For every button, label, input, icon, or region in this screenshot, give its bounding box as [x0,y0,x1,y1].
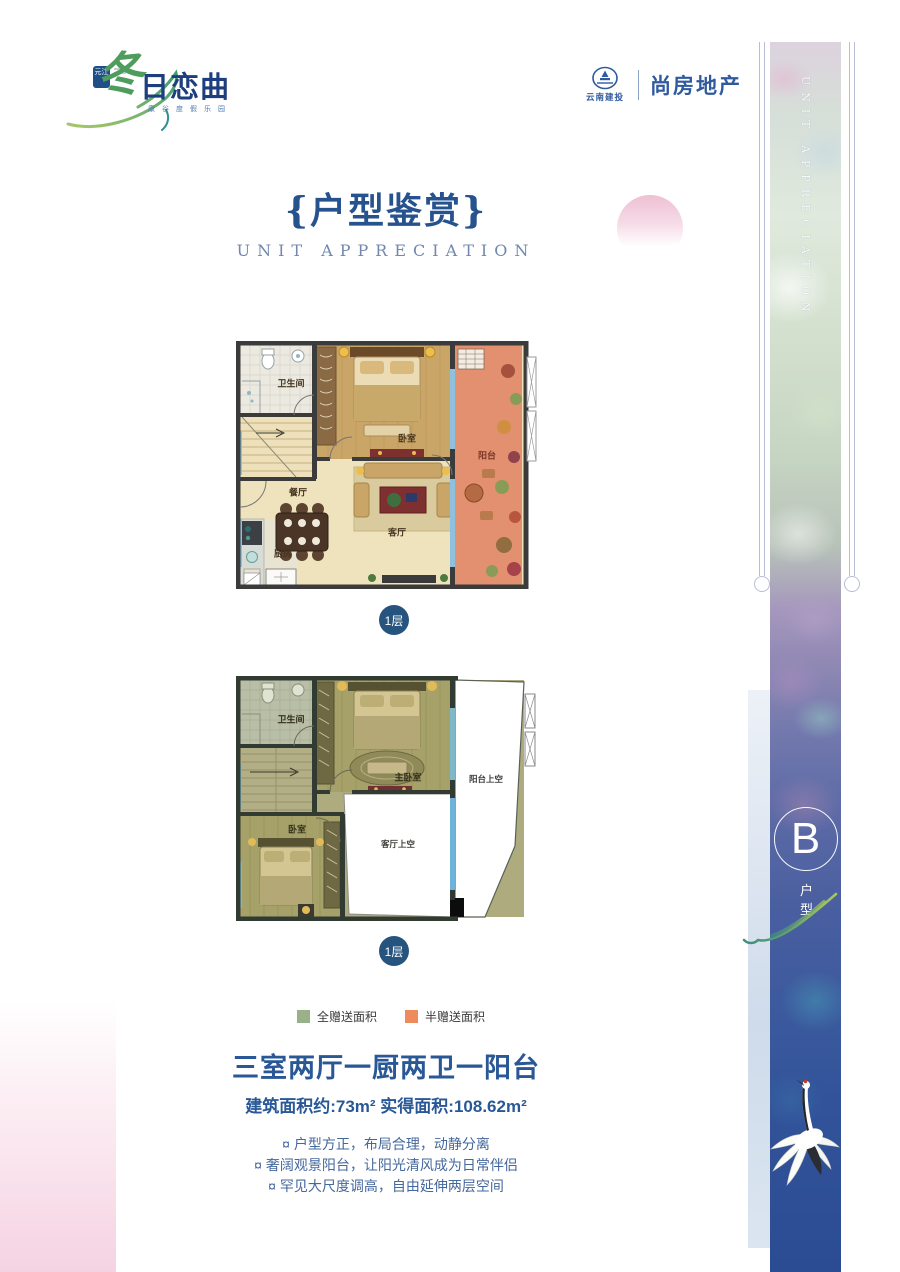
logo-divider [638,70,639,100]
developer-logo: 云南建投 [583,66,627,103]
rail-dot-left [754,576,770,592]
plan2-living-void [344,794,452,917]
floor-badge-2: 1层 [379,936,409,966]
floor-badge-1: 1层 [379,605,409,635]
room-label-bedroom: 卧室 [398,432,416,445]
unit-circle: B [774,807,838,871]
plan2-black-block [450,898,464,917]
legend-item-half-gift: 半赠送面积 [405,1008,485,1025]
legend-swatch-orange [405,1010,418,1023]
agency-name: 尚房地产 [650,70,742,100]
plan2-ac-ledge [525,694,535,766]
room-label-bathroom-2: 卫生间 [277,713,304,726]
band-vertical-text: UNIT APPRECIATION [799,76,812,319]
developer-logo-group: 云南建投 尚房地产 [583,66,742,103]
feature-line-3: ¤ 罕见大尺度调高，自由延伸两层空间 [186,1176,586,1197]
floor-plan-2: 卫生间 主卧室 阳台上空 卧室 客厅上空 [236,676,538,921]
pink-corner-decoration [0,1002,116,1272]
legend-item-full-gift: 全赠送面积 [297,1008,377,1025]
feature-line-2: ¤ 奢阔观景阳台，让阳光清风成为日常伴侣 [186,1155,586,1176]
brand-logo-accent-char: 冬 [93,34,147,108]
vine-decoration-icon [738,878,848,948]
unit-letter: B [791,814,820,864]
room-label-balcony-void: 阳台上空 [469,773,503,785]
brand-logo-text: 日恋曲 [140,64,230,106]
legend-label-full-gift: 全赠送面积 [317,1008,377,1025]
brand-tagline: 康谷度假乐园 [148,104,232,114]
feature-line-1: ¤ 户型方正，布局合理，动静分离 [186,1134,586,1155]
page-title: {户型鉴赏} [216,182,556,234]
crane-icon [767,1077,845,1197]
area-info: 建筑面积约:73m² 实得面积:108.62m² [211,1092,561,1117]
room-label-master-bedroom: 主卧室 [394,771,421,784]
rail-dot-right [844,576,860,592]
developer-emblem-icon [592,66,618,90]
feature-list: ¤ 户型方正，布局合理，动静分离 ¤ 奢阔观景阳台，让阳光清风成为日常伴侣 ¤ … [186,1134,586,1197]
legend: 全赠送面积 半赠送面积 [236,1008,546,1025]
rail-right [849,42,855,576]
legend-label-half-gift: 半赠送面积 [425,1008,485,1025]
room-label-kitchen: 厨房 [274,547,292,560]
legend-swatch-green [297,1010,310,1023]
room-label-living-void: 客厅上空 [381,838,415,850]
sun-decoration [617,195,683,261]
room-label-bedroom-2: 卧室 [288,823,306,836]
poster-page: 元江 冬 日恋曲 康谷度假乐园 云南建投 尚房地产 {户型鉴赏} UNIT AP… [0,0,900,1272]
room-label-bathroom: 卫生间 [277,377,304,390]
brand-logo: 元江 冬 日恋曲 康谷度假乐园 [70,46,280,132]
plan1-balcony-floor [452,345,522,585]
floor-plan-1: 卫生间 卧室 阳台 餐厅 客厅 厨房 [236,341,538,589]
developer-name: 云南建投 [586,91,624,103]
room-label-balcony: 阳台 [478,449,496,462]
room-label-living: 客厅 [388,526,406,539]
room-label-dining: 餐厅 [289,486,307,499]
page-subtitle: UNIT APPRECIATION [206,241,566,260]
rail-left [759,42,765,576]
layout-title: 三室两厅一厨两卫一阳台 [211,1046,561,1085]
